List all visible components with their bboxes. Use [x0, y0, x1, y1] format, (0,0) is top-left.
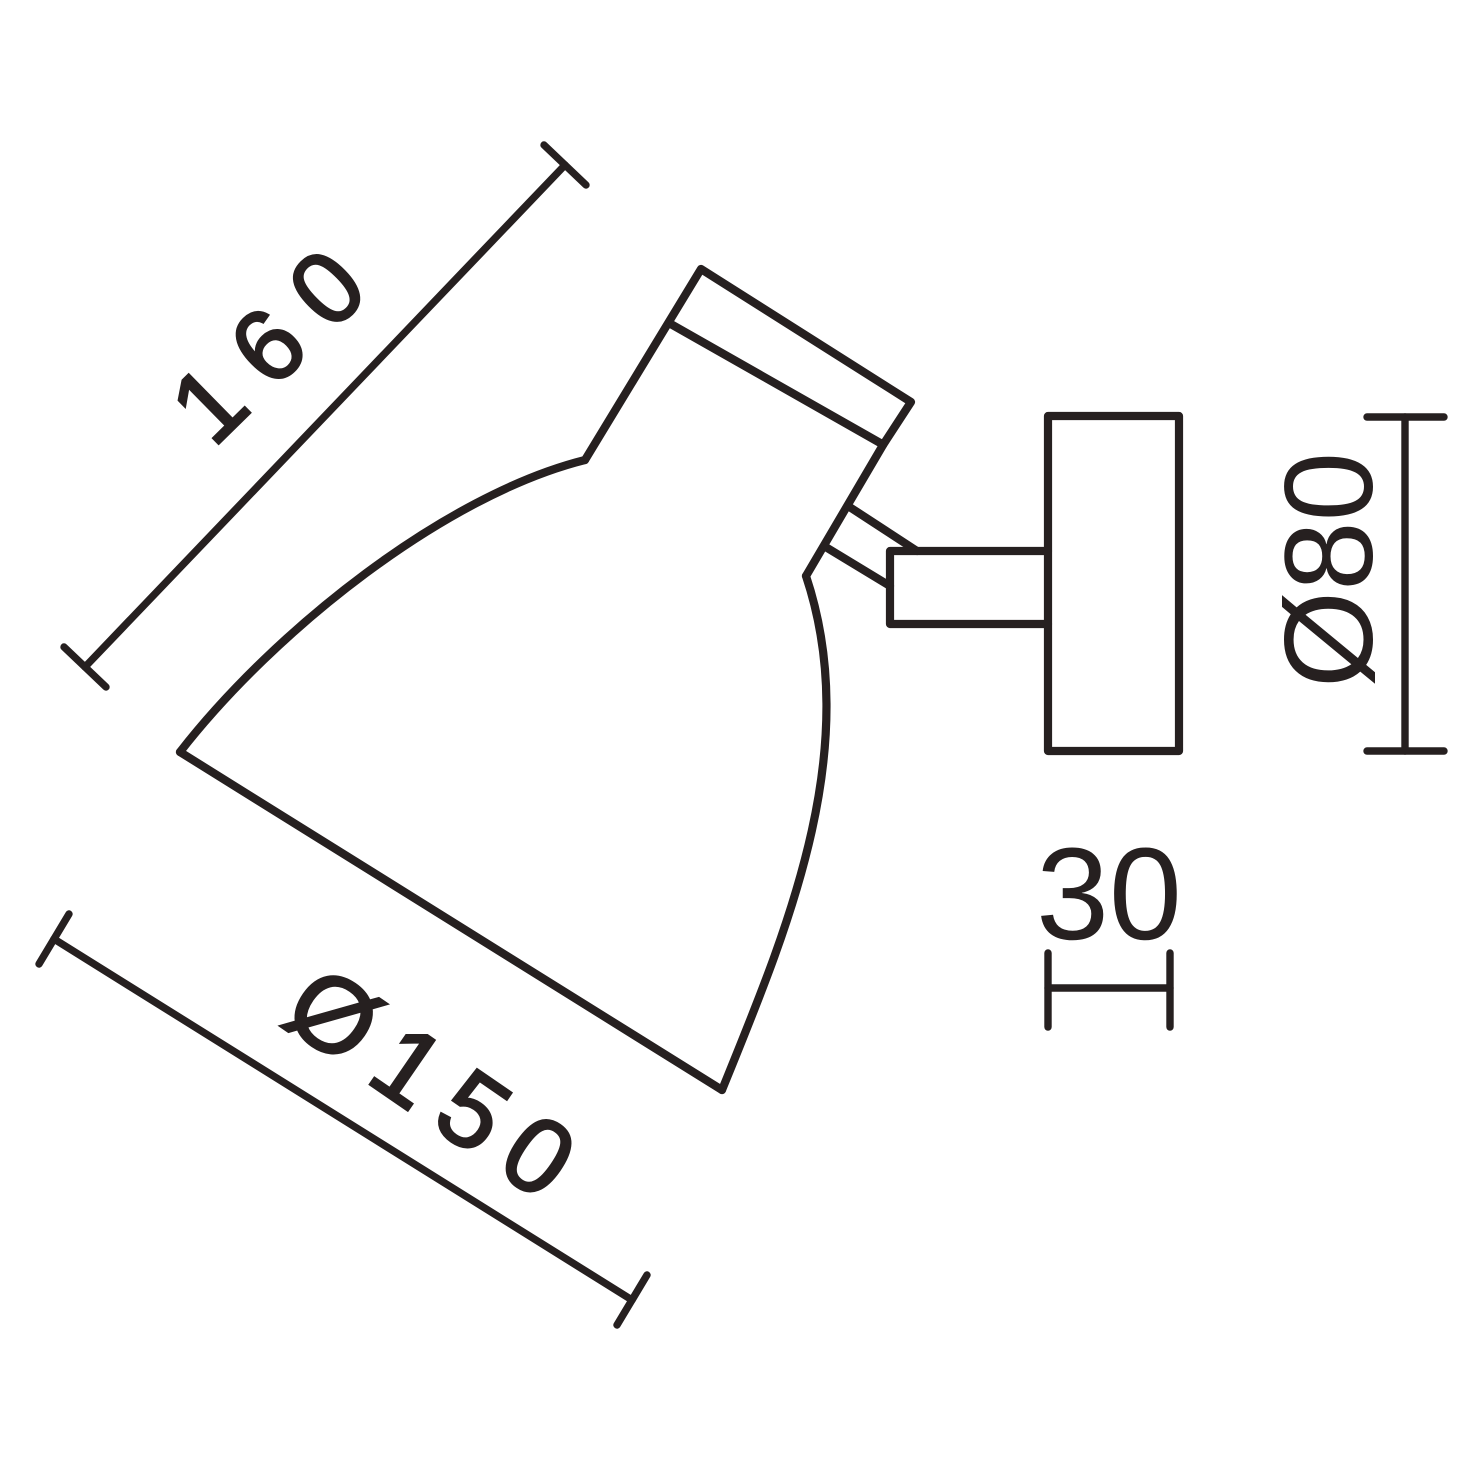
svg-text:Ø80: Ø80	[1260, 452, 1399, 688]
svg-text:160: 160	[149, 209, 406, 464]
svg-text:30: 30	[1036, 820, 1182, 967]
